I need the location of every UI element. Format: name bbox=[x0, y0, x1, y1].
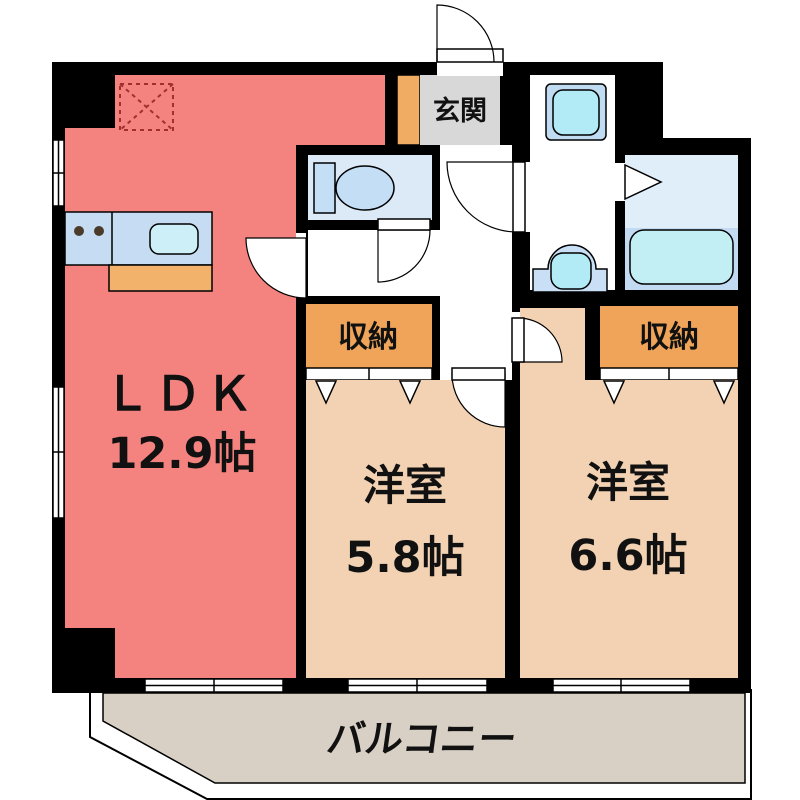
bedroom-b-floor-main bbox=[520, 380, 738, 678]
entrance-label: 玄関 bbox=[433, 95, 487, 127]
storage-b-label: 収納 bbox=[639, 320, 699, 355]
bedroom-b-area-label: 6.6帖 bbox=[568, 531, 687, 581]
kitchen-sink-icon bbox=[150, 224, 198, 254]
window-left-lower bbox=[53, 387, 64, 518]
bedroom-a-area-label: 5.8帖 bbox=[345, 533, 464, 583]
floor-plan: ＬＤＫ 12.9帖 洋室 5.8帖 洋室 6.6帖 玄関 収納 収納 バルコニー bbox=[0, 0, 800, 800]
toilet-bowl bbox=[336, 166, 394, 210]
ldk-area-label: 12.9帖 bbox=[107, 429, 256, 479]
toilet-icon bbox=[314, 163, 394, 213]
bathtub-icon bbox=[630, 230, 733, 284]
washroom-door-leaf bbox=[513, 162, 525, 232]
washing-machine-pan-icon bbox=[546, 84, 606, 140]
window-ldk-balcony bbox=[145, 679, 283, 692]
pan-inner bbox=[553, 90, 599, 135]
stove-burner-icon bbox=[94, 226, 104, 236]
bedroom-a-door-leaf bbox=[452, 368, 505, 380]
window-bedroom-b-balcony bbox=[553, 679, 690, 692]
balcony-label: バルコニー bbox=[324, 718, 519, 762]
washbasin-bowl bbox=[551, 253, 591, 289]
bedroom-b-label: 洋室 bbox=[586, 458, 670, 507]
floor-plan-page: ＬＤＫ 12.9帖 洋室 5.8帖 洋室 6.6帖 玄関 収納 収納 バルコニー bbox=[0, 0, 800, 800]
kitchen-lower-cabinet bbox=[109, 265, 212, 291]
toilet-door-leaf bbox=[378, 219, 430, 230]
entrance-doorway bbox=[437, 62, 503, 76]
shoe-cabinet bbox=[397, 75, 420, 145]
bedroom-b-door-leaf bbox=[512, 318, 524, 362]
bathroom-doorway bbox=[615, 163, 625, 201]
storage-a-label: 収納 bbox=[338, 320, 398, 355]
bedroom-a-label: 洋室 bbox=[363, 461, 447, 510]
window-left-upper bbox=[53, 140, 64, 206]
toilet-tank bbox=[314, 163, 335, 213]
stove-burner-icon bbox=[74, 226, 84, 236]
room-bedroom-a-floor bbox=[306, 380, 505, 678]
ldk-label: ＬＤＫ bbox=[104, 367, 257, 422]
window-bedroom-a-balcony bbox=[348, 679, 487, 692]
ldk-floor-bottom bbox=[115, 628, 296, 678]
